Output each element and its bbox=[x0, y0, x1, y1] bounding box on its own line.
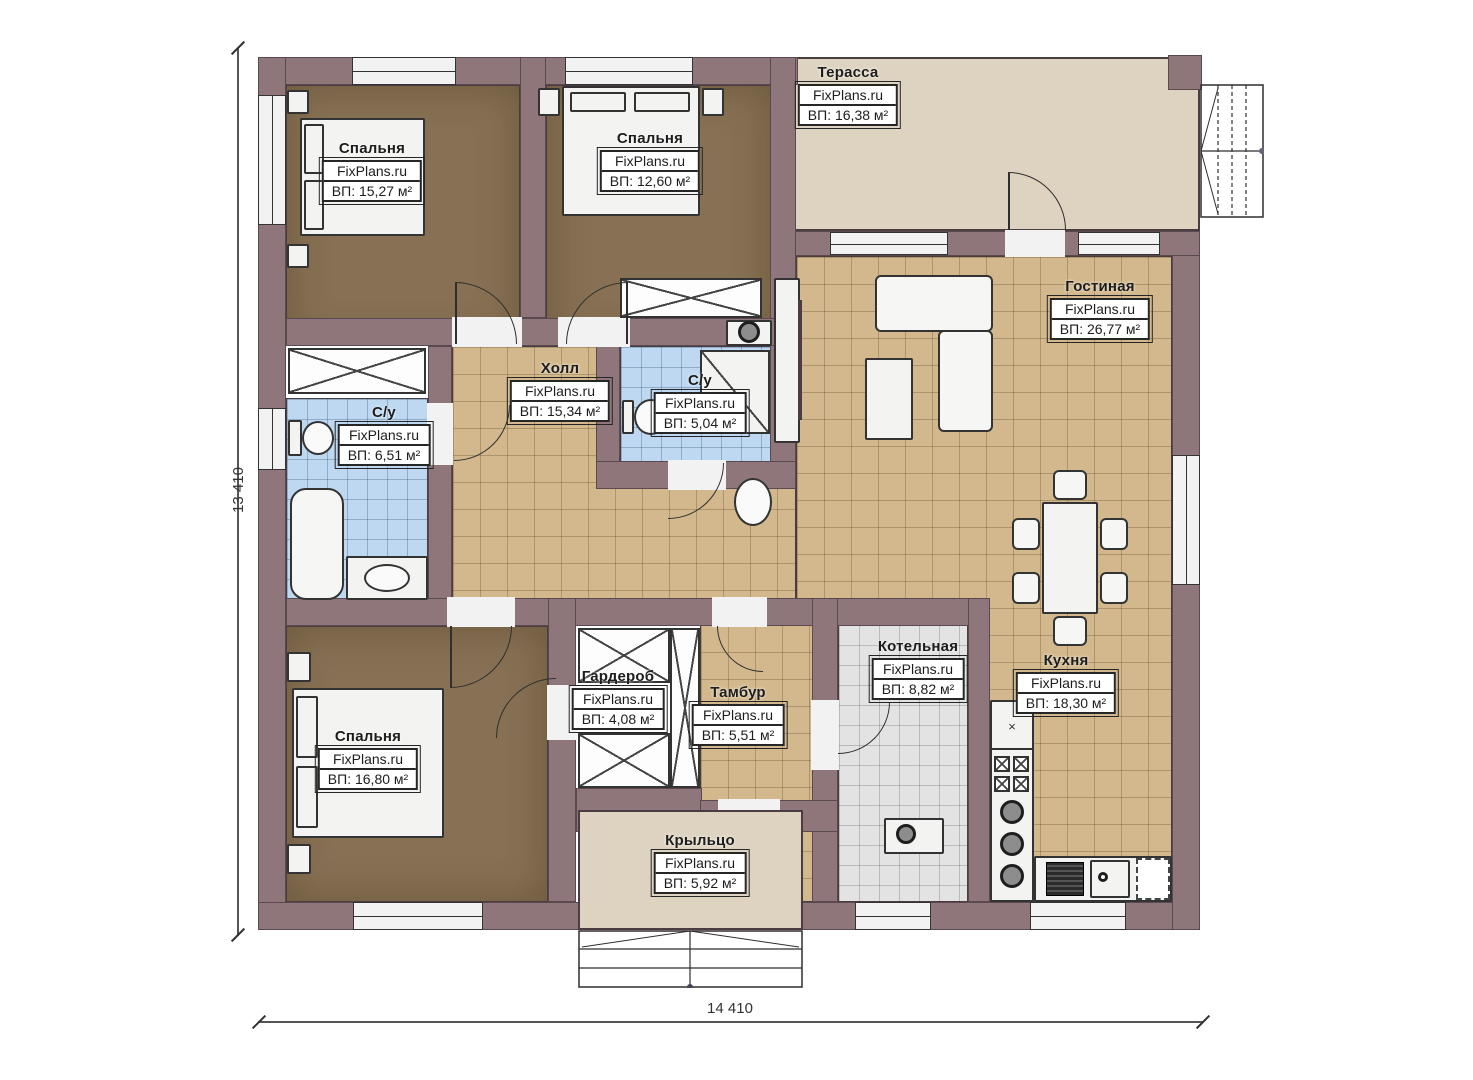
nightstand bbox=[287, 844, 311, 874]
terrace-steps bbox=[1200, 84, 1264, 218]
nightstand bbox=[287, 244, 309, 268]
door-opening-tambour-right bbox=[811, 700, 839, 770]
bed-pillow bbox=[296, 696, 318, 758]
brand-text: FixPlans.ru bbox=[324, 162, 420, 182]
area-text: ВП: 18,30 м² bbox=[1018, 694, 1114, 712]
kitchen-sink bbox=[1090, 860, 1130, 898]
room-label-tambour: Тамбур FixPlans.ru ВП: 5,51 м² bbox=[692, 684, 785, 746]
room-label-bathroom1: С/у FixPlans.ru ВП: 6,51 м² bbox=[338, 404, 431, 466]
dining-chair bbox=[1053, 616, 1087, 646]
area-text: ВП: 16,80 м² bbox=[320, 770, 416, 788]
cooktop-grate-icon bbox=[1013, 776, 1029, 792]
sofa-side bbox=[938, 330, 993, 432]
wall-hall-bottom bbox=[286, 598, 990, 626]
door-opening-tambour-top bbox=[712, 597, 767, 627]
window-bedroom1-top bbox=[352, 57, 456, 85]
sink-drain-icon bbox=[1098, 872, 1108, 882]
brand-text: FixPlans.ru bbox=[656, 854, 745, 874]
brand-text: FixPlans.ru bbox=[602, 152, 698, 172]
area-text: ВП: 4,08 м² bbox=[574, 710, 663, 728]
cooktop-grate-icon bbox=[994, 776, 1010, 792]
terrace-corner-column bbox=[1168, 55, 1202, 90]
kitchen-cabinet-dashed bbox=[1136, 858, 1170, 900]
burner-icon bbox=[1000, 832, 1024, 856]
window-living-terrace bbox=[830, 232, 948, 255]
toilet-tank bbox=[288, 420, 302, 456]
stove-icon bbox=[1046, 862, 1084, 896]
toilet-icon bbox=[302, 421, 334, 455]
door-opening-bathroom1 bbox=[427, 403, 453, 465]
window-bedroom1-left bbox=[258, 95, 286, 225]
dimension-bottom-label: 14 410 bbox=[707, 1000, 753, 1017]
wall-bedrooms-hall bbox=[286, 318, 796, 346]
brand-text: FixPlans.ru bbox=[1018, 674, 1114, 694]
brand-text: FixPlans.ru bbox=[694, 706, 783, 726]
porch-steps bbox=[578, 930, 803, 988]
brand-text: FixPlans.ru bbox=[874, 660, 963, 680]
brand-text: FixPlans.ru bbox=[512, 382, 608, 402]
dining-chair bbox=[1100, 572, 1128, 604]
room-label-wardrobe: Гардероб FixPlans.ru ВП: 4,08 м² bbox=[572, 668, 665, 730]
tv-icon bbox=[798, 300, 802, 420]
room-label-hall: Холл FixPlans.ru ВП: 15,34 м² bbox=[510, 360, 610, 422]
dining-chair bbox=[1012, 518, 1040, 550]
area-text: ВП: 5,51 м² bbox=[694, 726, 783, 744]
door-opening-terrace bbox=[1005, 230, 1065, 257]
window-living-terrace-2 bbox=[1078, 232, 1160, 255]
area-text: ВП: 5,04 м² bbox=[656, 414, 745, 432]
door-leaf bbox=[455, 282, 457, 344]
window-bedroom3-bottom bbox=[353, 902, 483, 930]
area-text: ВП: 16,38 м² bbox=[800, 106, 896, 124]
brand-text: FixPlans.ru bbox=[574, 690, 663, 710]
nightstand bbox=[702, 88, 724, 116]
door-opening-bedroom3 bbox=[447, 597, 515, 627]
closet-bedroom1 bbox=[288, 348, 426, 394]
room-label-living: Гостиная FixPlans.ru ВП: 26,77 м² bbox=[1050, 278, 1150, 340]
area-text: ВП: 5,92 м² bbox=[656, 874, 745, 892]
dining-table bbox=[1042, 502, 1098, 614]
sofa-top bbox=[875, 275, 993, 332]
area-text: ВП: 15,27 м² bbox=[324, 182, 420, 200]
room-label-porch: Крыльцо FixPlans.ru ВП: 5,92 м² bbox=[654, 832, 747, 894]
area-text: ВП: 12,60 м² bbox=[602, 172, 698, 190]
room-label-boiler: Котельная FixPlans.ru ВП: 8,82 м² bbox=[872, 638, 965, 700]
burner-icon bbox=[1000, 864, 1024, 888]
brand-text: FixPlans.ru bbox=[340, 426, 429, 446]
sink-icon bbox=[364, 564, 410, 592]
door-leaf bbox=[450, 626, 452, 688]
room-label-bedroom3: Спальня FixPlans.ru ВП: 16,80 м² bbox=[318, 728, 418, 790]
brand-text: FixPlans.ru bbox=[656, 394, 745, 414]
brand-text: FixPlans.ru bbox=[800, 86, 896, 106]
room-label-bedroom1: Спальня FixPlans.ru ВП: 15,27 м² bbox=[322, 140, 422, 202]
door-leaf bbox=[626, 282, 628, 344]
floor-plan-sheet: × Тера bbox=[0, 0, 1473, 1080]
window-kitchen-right bbox=[1172, 455, 1200, 585]
area-text: ВП: 6,51 м² bbox=[340, 446, 429, 464]
window-bedroom2-top bbox=[565, 57, 693, 85]
dimension-left-label: 13 410 bbox=[230, 467, 247, 513]
dining-chair bbox=[1100, 518, 1128, 550]
bed-pillow bbox=[570, 92, 626, 112]
nightstand bbox=[538, 88, 560, 116]
window-bathroom1-left bbox=[258, 408, 286, 470]
brand-text: FixPlans.ru bbox=[1052, 300, 1148, 320]
boiler-dial-icon bbox=[896, 824, 916, 844]
closet-bedroom2 bbox=[620, 278, 762, 318]
door-boiler-bottom bbox=[855, 902, 931, 930]
sink-icon bbox=[734, 478, 772, 526]
wall-bedroom3-right bbox=[548, 598, 576, 902]
cooktop-grate-icon bbox=[994, 756, 1010, 772]
bed-pillow bbox=[634, 92, 690, 112]
area-text: ВП: 8,82 м² bbox=[874, 680, 963, 698]
bathtub-icon bbox=[290, 488, 344, 600]
room-label-bedroom2: Спальня FixPlans.ru ВП: 12,60 м² bbox=[600, 130, 700, 192]
nightstand bbox=[287, 652, 311, 682]
dining-chair bbox=[1053, 470, 1087, 500]
window-kitchen-bottom bbox=[1030, 902, 1126, 930]
door-leaf bbox=[1008, 172, 1010, 230]
coffee-table bbox=[865, 358, 913, 440]
room-label-bathroom2: С/у FixPlans.ru ВП: 5,04 м² bbox=[654, 372, 747, 434]
burner-icon bbox=[1000, 800, 1024, 824]
toilet-tank bbox=[622, 400, 634, 434]
washing-machine-drum-icon bbox=[738, 321, 760, 343]
dimension-line-bottom bbox=[258, 1021, 1203, 1023]
wall-boiler-kitchen bbox=[968, 598, 990, 902]
tv-cabinet bbox=[774, 278, 800, 443]
room-label-terrace: Терасса FixPlans.ru ВП: 16,38 м² bbox=[798, 64, 898, 126]
area-text: ВП: 26,77 м² bbox=[1052, 320, 1148, 338]
bed-pillow bbox=[296, 766, 318, 828]
wall-hall-bathroom1 bbox=[428, 346, 452, 600]
area-text: ВП: 15,34 м² bbox=[512, 402, 608, 420]
dining-chair bbox=[1012, 572, 1040, 604]
brand-text: FixPlans.ru bbox=[320, 750, 416, 770]
room-label-kitchen: Кухня FixPlans.ru ВП: 18,30 м² bbox=[1016, 652, 1116, 714]
nightstand bbox=[287, 90, 309, 114]
cooktop-grate-icon bbox=[1013, 756, 1029, 772]
wardrobe-cabinet bbox=[578, 733, 670, 788]
